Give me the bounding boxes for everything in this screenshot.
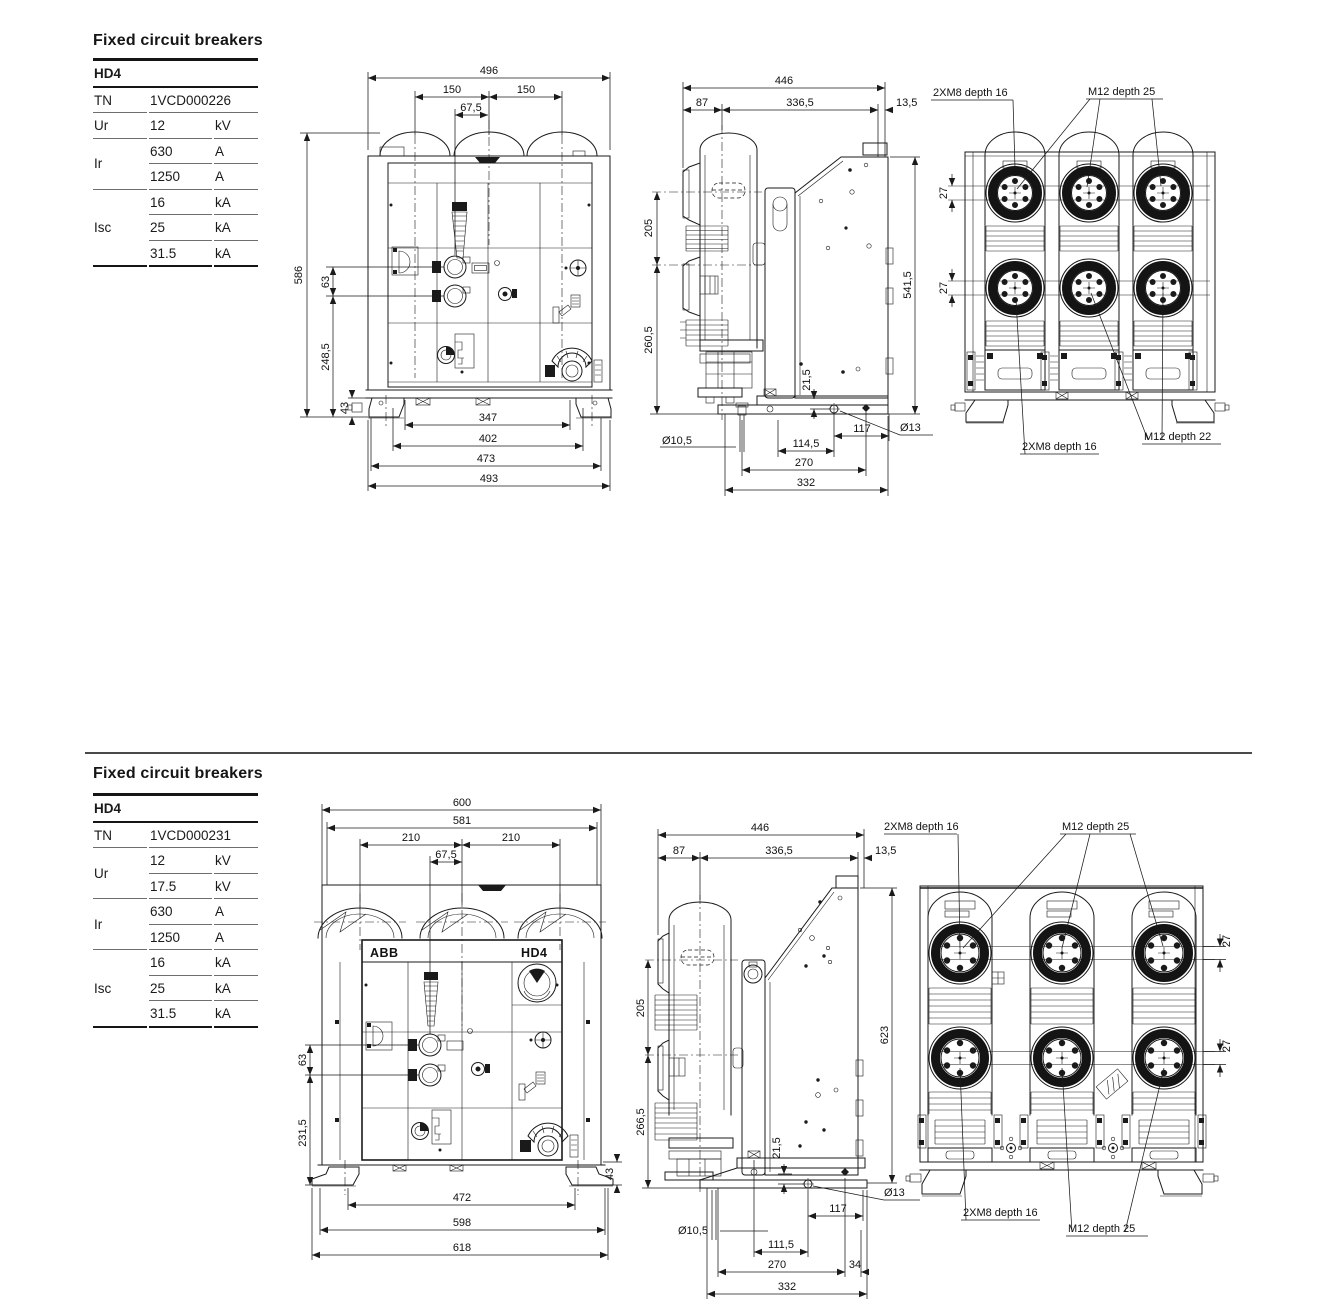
dim-lower: 248,5 <box>320 343 332 371</box>
dim-m4: 332 <box>778 1281 796 1293</box>
dim-height: 586 <box>293 266 305 284</box>
row-label: TN <box>93 823 147 849</box>
ir-value: 1250 <box>149 164 212 190</box>
isc-value: 16 <box>149 190 212 216</box>
isc-unit: kA <box>214 190 258 216</box>
ir-value: 630 <box>149 139 212 165</box>
hd4-label: HD4 <box>521 946 548 960</box>
dim-depth: 446 <box>751 822 769 834</box>
dim-up: 205 <box>643 219 655 237</box>
dim-depth: 446 <box>775 75 793 87</box>
dim-foot: 43 <box>339 402 351 414</box>
front-view-dimensions: 496 150 150 67,5 586 63 248,5 43 347 402… <box>293 65 610 491</box>
rear-view-dimensions: 2XM8 depth 16 M12 depth 25 27 27 2XM8 de… <box>884 821 1233 1236</box>
row-label: Ir <box>93 139 147 190</box>
dim-offset: 67,5 <box>435 849 456 861</box>
row-label: Ir <box>93 899 147 950</box>
isc-unit: kA <box>214 1001 258 1028</box>
ur-unit: kV <box>214 848 258 874</box>
dim-m2: 117 <box>853 423 871 435</box>
dim-hole-offset: 21,5 <box>771 1137 783 1158</box>
dim-m1: 111,5 <box>768 1239 794 1251</box>
rear-view-drawing-2: 2XM8 depth 16 M12 depth 25 27 27 2XM8 de… <box>880 795 1323 1255</box>
model-name: HD4 <box>93 793 258 823</box>
row-label: Ur <box>93 848 147 899</box>
dim-offset-27: 27 <box>938 187 950 199</box>
isc-unit: kA <box>214 241 258 268</box>
dim-pole-pitch: 210 <box>402 832 420 844</box>
front-view-drawing-2: ABB HD4 600 581 210 210 67,5 63 231,5 43… <box>283 795 635 1290</box>
thread-note-top-right: M12 depth 25 <box>1088 86 1155 98</box>
side-view-dimensions: 446 87 336,5 13,5 205 266,5 623 21,5 Ø10… <box>635 822 920 1299</box>
dim-height: 541,5 <box>902 271 914 299</box>
thread-note-top-left: 2XM8 depth 16 <box>884 821 959 833</box>
dim-b: 336,5 <box>765 845 793 857</box>
dim-c: 13,5 <box>896 97 917 109</box>
dim-base1: 472 <box>453 1192 471 1204</box>
ur-value: 17.5 <box>149 874 212 900</box>
dim-shaft: 63 <box>320 276 332 288</box>
dim-m1: 114,5 <box>793 438 820 450</box>
isc-value: 25 <box>149 976 212 1002</box>
row-label: Isc <box>93 950 147 1028</box>
ir-unit: A <box>214 164 258 190</box>
ir-unit: A <box>214 899 258 925</box>
dim-up: 205 <box>635 999 647 1017</box>
ir-value: 1250 <box>149 925 212 951</box>
breaker-side-body <box>645 876 867 1192</box>
dim-offset-27: 27 <box>1221 1040 1233 1052</box>
dim-low: 260,5 <box>643 326 655 354</box>
breaker-front-body <box>348 120 612 427</box>
dim-m4: 332 <box>797 477 815 489</box>
ir-unit: A <box>214 139 258 165</box>
dim-offset-27: 27 <box>1221 935 1233 947</box>
section-title: Fixed circuit breakers <box>93 765 263 783</box>
spec-table-1: HD4 TN 1VCD000226 Ur 12 kV Ir 630 A 1250… <box>91 58 260 267</box>
isc-unit: kA <box>214 976 258 1002</box>
isc-value: 31.5 <box>149 241 212 268</box>
dim-m3b: 34 <box>849 1259 861 1271</box>
dim-m2: 117 <box>829 1203 847 1215</box>
tn-value: 1VCD000231 <box>149 823 258 849</box>
front-view-drawing-1: 496 150 150 67,5 586 63 248,5 43 347 402… <box>280 55 635 510</box>
dim-low: 266,5 <box>635 1108 647 1136</box>
dim-offset: 67,5 <box>460 102 481 114</box>
dim-width2: 581 <box>453 815 471 827</box>
dim-base1: 347 <box>479 412 497 424</box>
thread-note-top-left: 2XM8 depth 16 <box>933 87 1008 99</box>
dim-m3: 270 <box>795 457 813 469</box>
thread-note-bottom-right: M12 depth 22 <box>1144 431 1211 443</box>
dim-offset-27: 27 <box>938 282 950 294</box>
row-label: Isc <box>93 190 147 268</box>
dim-pole-pitch: 150 <box>517 84 535 96</box>
tn-value: 1VCD000226 <box>149 88 258 114</box>
dim-pole-pitch: 150 <box>443 84 461 96</box>
dim-base3: 473 <box>477 453 495 465</box>
dim-base3: 618 <box>453 1242 471 1254</box>
thread-note-bottom-left: 2XM8 depth 16 <box>963 1207 1038 1219</box>
dim-foot: 43 <box>604 1168 616 1180</box>
row-label: Ur <box>93 113 147 139</box>
spec-table-2: HD4 TN 1VCD000231 Ur 12 kV 17.5 kV Ir 63… <box>91 793 260 1028</box>
breaker-side-body <box>652 125 893 420</box>
ur-value: 12 <box>149 848 212 874</box>
thread-note-bottom-right: M12 depth 25 <box>1068 1223 1135 1235</box>
ur-unit: kV <box>214 113 258 139</box>
ur-unit: kV <box>214 874 258 900</box>
dim-hole-d1: Ø10,5 <box>678 1225 708 1237</box>
dim-a: 87 <box>696 97 708 109</box>
side-view-drawing-1: 446 87 336,5 13,5 205 260,5 541,5 21,5 Ø… <box>635 55 935 515</box>
isc-value: 16 <box>149 950 212 976</box>
side-view-dimensions: 446 87 336,5 13,5 205 260,5 541,5 21,5 Ø… <box>643 75 933 496</box>
dim-b: 336,5 <box>786 97 814 109</box>
model-name: HD4 <box>93 58 258 88</box>
ur-value: 12 <box>149 113 212 139</box>
isc-unit: kA <box>214 215 258 241</box>
dim-width: 600 <box>453 797 471 809</box>
dim-shaft: 63 <box>297 1054 309 1066</box>
isc-value: 31.5 <box>149 1001 212 1028</box>
section-divider <box>85 752 1252 754</box>
dim-base2: 402 <box>479 433 497 445</box>
abb-logo: ABB <box>370 946 399 960</box>
rear-view-drawing-1: 2XM8 depth 16 M12 depth 25 27 27 2XM8 de… <box>925 55 1323 475</box>
thread-note-bottom-left: 2XM8 depth 16 <box>1022 441 1097 453</box>
dim-hole-offset: 21,5 <box>801 369 813 390</box>
isc-value: 25 <box>149 215 212 241</box>
dim-width: 496 <box>480 65 498 77</box>
ir-value: 630 <box>149 899 212 925</box>
front-view-dimensions: ABB HD4 600 581 210 210 67,5 63 231,5 43… <box>297 797 622 1260</box>
breaker-rear-body <box>906 886 1218 1196</box>
dim-hole-d2: Ø13 <box>900 422 921 434</box>
dim-base2: 598 <box>453 1217 471 1229</box>
dim-hole-d1: Ø10,5 <box>662 435 692 447</box>
dim-a: 87 <box>673 845 685 857</box>
dim-base4: 493 <box>480 473 498 485</box>
isc-unit: kA <box>214 950 258 976</box>
section-title: Fixed circuit breakers <box>93 32 263 50</box>
breaker-front-body <box>312 885 613 1195</box>
catalog-page: Fixed circuit breakers HD4 TN 1VCD000226… <box>0 0 1323 1309</box>
row-label: TN <box>93 88 147 114</box>
dim-m3: 270 <box>768 1259 786 1271</box>
dim-lower: 231,5 <box>297 1119 309 1147</box>
ir-unit: A <box>214 925 258 951</box>
thread-note-top-right: M12 depth 25 <box>1062 821 1129 833</box>
dim-pole-pitch: 210 <box>502 832 520 844</box>
